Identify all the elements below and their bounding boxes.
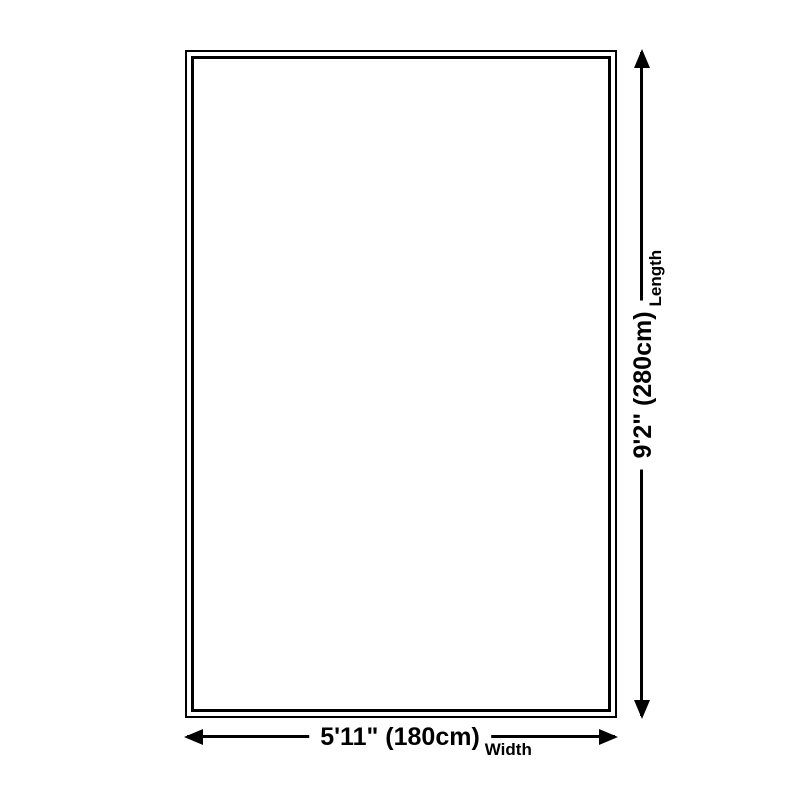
dimension-diagram: 9'2" (280cm) Length 5'11" (180cm) Width xyxy=(0,0,800,800)
length-unit-label: Length xyxy=(646,250,666,307)
arrow-down-icon xyxy=(634,700,650,719)
length-value: 9'2" (280cm) xyxy=(627,300,660,469)
arrow-right-icon xyxy=(599,729,618,745)
length-dimension-label: 9'2" (280cm) Length xyxy=(627,300,660,469)
width-value: 5'11" (180cm) xyxy=(309,721,491,754)
width-dimension-label: 5'11" (180cm) Width xyxy=(309,721,491,754)
arrow-left-icon xyxy=(184,729,203,745)
width-unit-label: Width xyxy=(485,740,532,760)
rug-outline xyxy=(185,50,617,718)
arrow-up-icon xyxy=(634,49,650,68)
rug-inner-outline xyxy=(191,56,611,712)
